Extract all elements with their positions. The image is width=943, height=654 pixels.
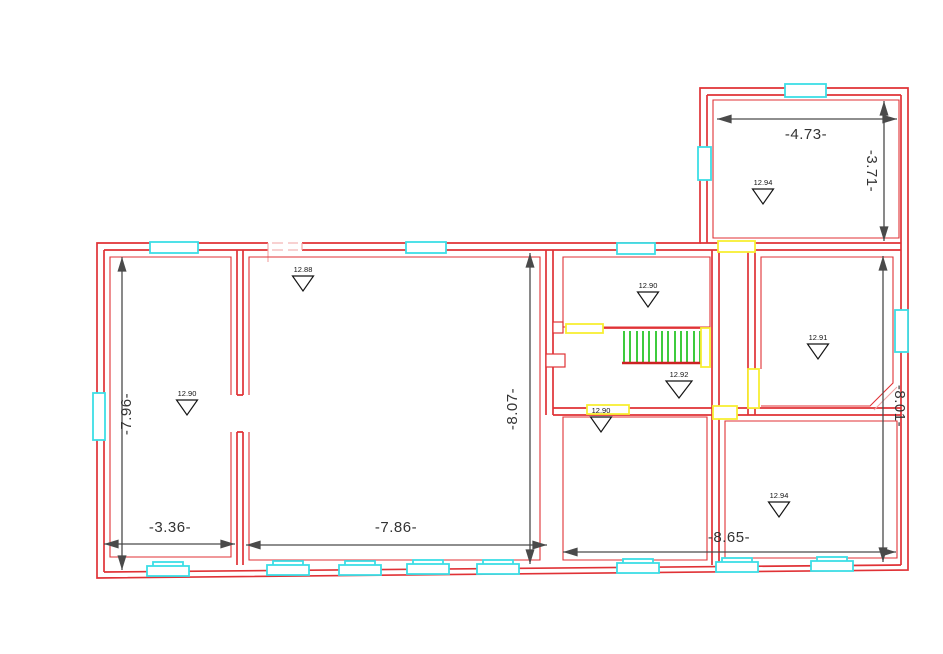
staircase [603, 328, 703, 363]
dim-label-main-depth: -8.07- [504, 388, 521, 430]
window-bottom-3 [339, 561, 381, 575]
dim-label-left-width: -3.36- [149, 519, 191, 536]
dim-label-main-width: -7.86- [375, 519, 417, 536]
window-bottom-4 [407, 560, 449, 574]
door-wing-bottom [718, 241, 755, 252]
floor-plan-canvas: -4.73- -3.71- -7.96- -8.07- -8.01- -3.36… [0, 0, 943, 654]
elevation-triangle-icon [177, 400, 198, 415]
wall-pilaster-block [546, 354, 565, 367]
room-bottom-middle [563, 417, 707, 560]
dim-label-right-depth: -8.01- [891, 385, 908, 427]
window-left-wall [93, 393, 105, 440]
window-wing-top [785, 84, 826, 97]
elevation-label: 12.90 [592, 406, 611, 415]
room-right-middle [761, 257, 893, 406]
room-main [249, 257, 540, 560]
window-bottom-5 [477, 560, 519, 574]
elevation-label: 12.94 [754, 178, 773, 187]
elevation-bottom-middle-room: 12.90 [591, 406, 612, 432]
elevation-stair-landing: 12.92 [666, 370, 692, 398]
door-stair-side [701, 328, 710, 367]
elevation-label: 12.88 [294, 265, 313, 274]
dim-label-top-right-depth: -3.71- [863, 150, 880, 192]
room-middle-hall [563, 257, 710, 327]
elevation-top-right-room: 12.94 [753, 178, 774, 204]
window-top-1 [150, 242, 198, 253]
window-bottom-2 [267, 561, 309, 575]
door-corridor [713, 406, 737, 419]
elevation-triangle-icon [769, 502, 790, 517]
dim-label-top-right-width: -4.73- [785, 126, 827, 143]
window-bottom-8 [811, 557, 853, 571]
dim-label-bottom-right-width: -8.65- [708, 529, 750, 546]
elevation-triangle-icon [666, 381, 692, 398]
window-hall-top [617, 243, 655, 254]
doors [566, 241, 759, 419]
elevation-label: 12.91 [809, 333, 828, 342]
floor-plan-drawing: -4.73- -3.71- -7.96- -8.07- -8.01- -3.36… [0, 0, 943, 654]
window-bottom-7 [716, 558, 758, 572]
door-right-room [748, 369, 759, 408]
window-right-wall [895, 310, 908, 352]
elevation-label: 12.90 [639, 281, 658, 290]
elevation-triangle-icon [638, 292, 659, 307]
elevation-markers: 12.94 12.88 12.90 12.90 12.92 12.90 12.9… [177, 178, 829, 517]
partition-main-right [546, 250, 553, 415]
elevation-label: 12.94 [770, 491, 789, 500]
window-top-2 [406, 242, 446, 253]
window-bottom-6 [617, 559, 659, 573]
window-bottom-1 [147, 562, 189, 576]
room-bottom-right [725, 421, 897, 558]
elevation-bottom-right-room: 12.94 [769, 491, 790, 517]
partition-left [237, 250, 243, 565]
elevation-label: 12.90 [178, 389, 197, 398]
wall-pilaster-notch [553, 322, 563, 333]
elevation-triangle-icon [591, 417, 612, 432]
elevation-triangle-icon [293, 276, 314, 291]
elevation-triangle-icon [753, 189, 774, 204]
window-wing-left [698, 147, 711, 180]
elevation-middle-hall: 12.90 [638, 281, 659, 307]
elevation-right-middle-room: 12.91 [808, 333, 829, 359]
top-wall-opening-stubs [268, 243, 302, 262]
stair-treads [624, 331, 700, 362]
interior-walls [237, 250, 901, 565]
door-hall [566, 324, 603, 333]
elevation-label: 12.92 [670, 370, 689, 379]
elevation-triangle-icon [808, 344, 829, 359]
elevation-left-room: 12.90 [177, 389, 198, 415]
elevation-main-room: 12.88 [293, 265, 314, 291]
dim-label-left-depth: -7.96- [118, 393, 135, 435]
